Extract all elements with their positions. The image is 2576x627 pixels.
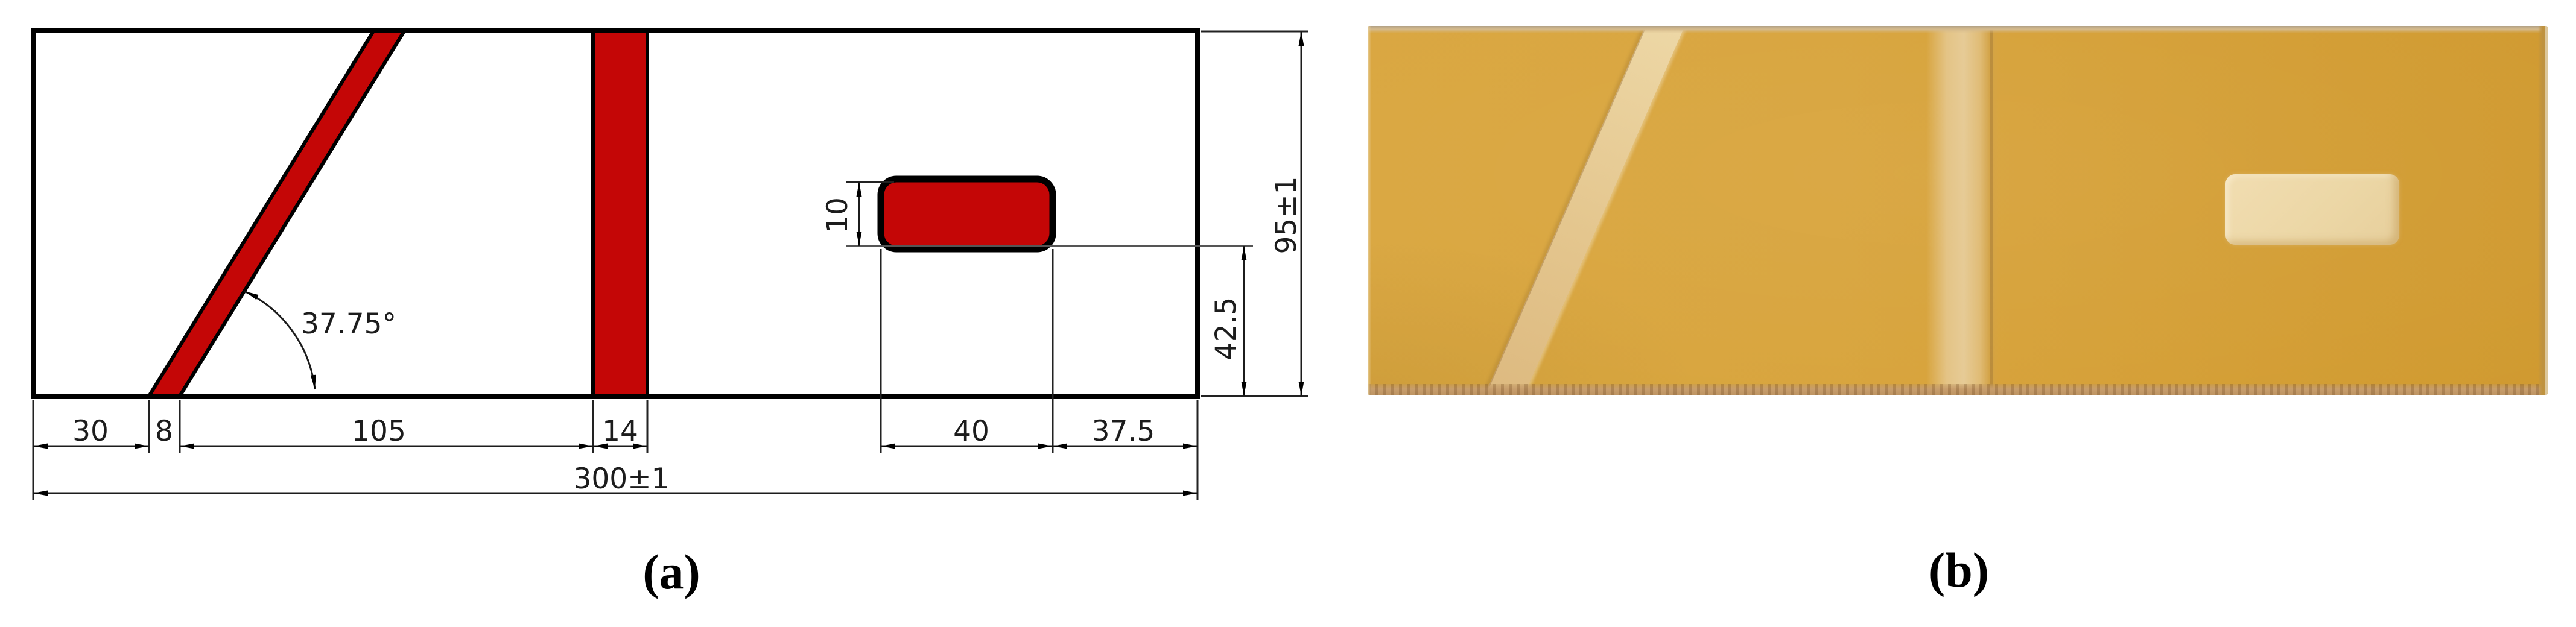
specimen-photo <box>1368 26 2548 395</box>
photo-vertical-insert <box>1926 26 1999 395</box>
photo-top-edge <box>1368 26 2548 33</box>
photo-patch-insert <box>2225 174 2399 245</box>
patch-insert <box>881 179 1053 249</box>
photo-slanted-insert <box>1477 26 1693 395</box>
angle-label: 37.75° <box>301 307 396 341</box>
dim-30: 30 <box>72 415 109 448</box>
panel-b-label: (b) <box>1929 546 1989 595</box>
dim-8: 8 <box>155 415 173 448</box>
figure-container: 37.75° <box>0 0 2576 627</box>
panel-a-label: (a) <box>642 547 700 597</box>
dim-300: 300±1 <box>574 462 670 496</box>
dim-37-5: 37.5 <box>1092 415 1155 448</box>
dim-14: 14 <box>602 415 638 448</box>
photo-left-edge <box>1368 26 1371 395</box>
photo-bottom-edge <box>1368 384 2548 395</box>
vertical-insert <box>593 30 647 396</box>
dim-40: 40 <box>953 415 989 448</box>
dim-10: 10 <box>821 197 854 233</box>
photo-right-edge <box>2538 26 2548 395</box>
dim-105: 105 <box>352 415 406 448</box>
dim-95: 95±1 <box>1270 176 1303 254</box>
panel-a-drawing: 37.75° <box>0 0 1369 627</box>
dim-42-5: 42.5 <box>1210 297 1243 361</box>
